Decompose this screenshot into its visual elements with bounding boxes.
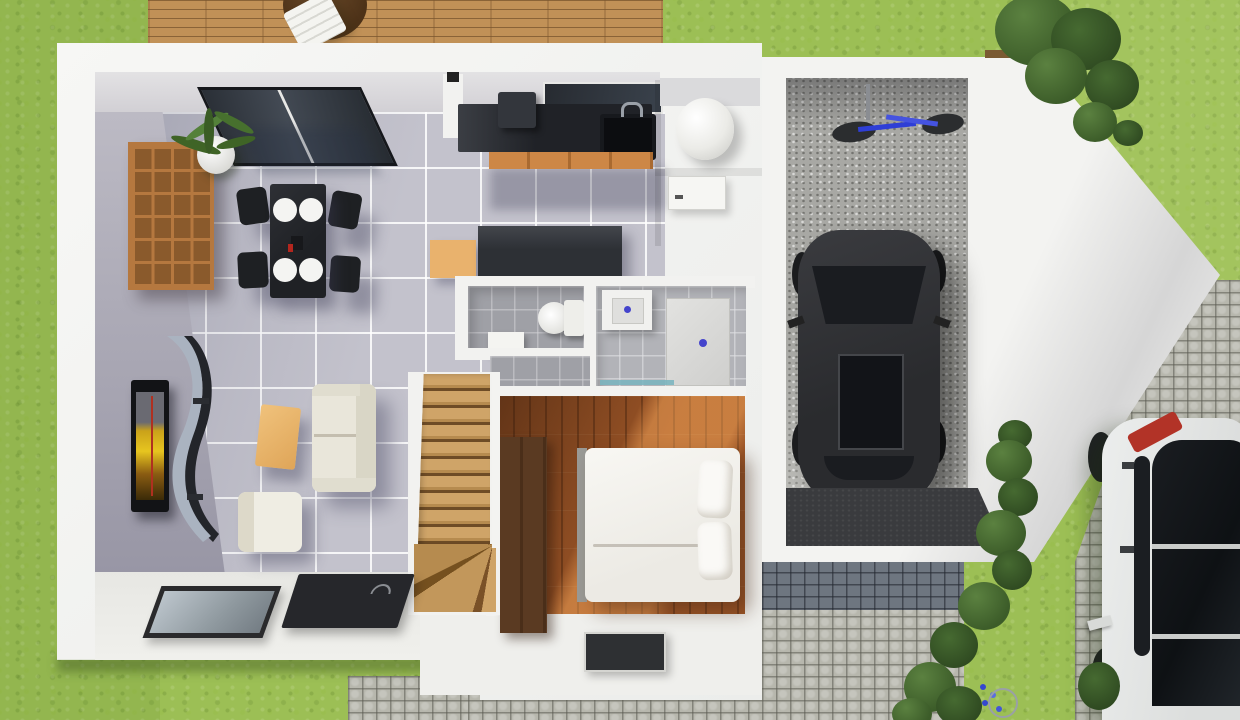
sofa <box>312 384 376 492</box>
water-heater <box>676 98 734 160</box>
pillow-2 <box>697 521 733 580</box>
plate <box>299 258 323 282</box>
bush-over-car <box>1078 662 1120 710</box>
centerpiece-red <box>288 244 293 252</box>
duvet-fold <box>593 544 713 547</box>
toilet-tank <box>564 300 584 336</box>
bush-blob <box>1073 102 1117 142</box>
white-car-side-window <box>1134 456 1150 656</box>
dark-rug <box>281 574 415 628</box>
dining-chair <box>329 255 361 293</box>
white-car-door-handle <box>1122 462 1134 469</box>
plate <box>273 258 297 282</box>
coffee-table <box>255 404 301 470</box>
deck-terrace <box>148 0 663 44</box>
sideboard <box>478 226 622 278</box>
stairs-right-stringer <box>492 372 500 548</box>
sink-drain-dot <box>624 306 631 313</box>
stairs-flight <box>418 374 490 546</box>
hedge-blob <box>992 550 1032 590</box>
hedge-blob <box>976 510 1026 556</box>
shower-sink <box>602 290 652 330</box>
bicycle <box>828 84 968 148</box>
storage-box <box>430 240 476 278</box>
flower-dot <box>980 684 986 690</box>
pillar-cap <box>447 72 459 82</box>
shower-drain-dot <box>699 339 707 347</box>
potted-plant <box>164 100 254 186</box>
door-handle <box>675 195 683 199</box>
white-car-door-handle <box>1120 546 1134 553</box>
tv-screen-line <box>151 396 153 496</box>
bike-wheel <box>831 119 877 145</box>
dining-chair <box>327 190 363 231</box>
hedge-blob <box>930 622 978 668</box>
faucet <box>621 102 643 117</box>
glass-door-reflection <box>239 128 380 174</box>
plant-leaf <box>204 108 214 154</box>
white-car-roof-bar <box>1152 544 1240 549</box>
sofa-cushion-line <box>314 434 356 437</box>
stairs-winder <box>414 544 496 612</box>
hedge-blob <box>958 582 1010 630</box>
dining-chair <box>237 251 269 289</box>
wardrobe <box>500 437 547 633</box>
floor-plan-render <box>0 0 1240 720</box>
blue-flowers <box>978 680 1022 720</box>
rug-arrow-mark <box>370 584 393 594</box>
plate <box>273 198 297 222</box>
hedge-blob <box>986 440 1032 482</box>
small-wheel <box>988 688 1018 718</box>
sofa-backrest <box>356 384 376 492</box>
coffee-machine <box>498 92 536 128</box>
sofa-armrest-bottom <box>312 478 376 492</box>
shower-screen <box>600 380 674 385</box>
dining-chair <box>236 186 271 226</box>
white-car-roof-bar <box>1152 634 1240 639</box>
sofa-armrest-top <box>312 384 360 396</box>
utility-bottom-wall-line <box>655 168 762 176</box>
hedge-blob <box>936 686 982 720</box>
curved-designer-shelf <box>163 336 219 544</box>
pillow-1 <box>697 459 734 519</box>
bush-blob <box>1113 120 1143 146</box>
car-windshield <box>812 266 926 324</box>
plate <box>299 198 323 222</box>
bush-blob <box>1025 48 1087 104</box>
kitchen-cabinets <box>489 152 653 169</box>
shower-tray <box>666 298 730 386</box>
white-car-roof-glass <box>1152 440 1240 706</box>
armchair-back <box>238 492 254 552</box>
hedge <box>880 420 1040 720</box>
counter-shadow <box>490 168 665 210</box>
entry-doormat <box>584 632 666 672</box>
utility-door <box>668 176 726 210</box>
glass-floor-window <box>143 586 282 638</box>
tv-screen <box>136 392 164 500</box>
bike-hanger <box>866 84 870 120</box>
large-bush <box>985 0 1155 160</box>
armchair <box>238 492 302 552</box>
